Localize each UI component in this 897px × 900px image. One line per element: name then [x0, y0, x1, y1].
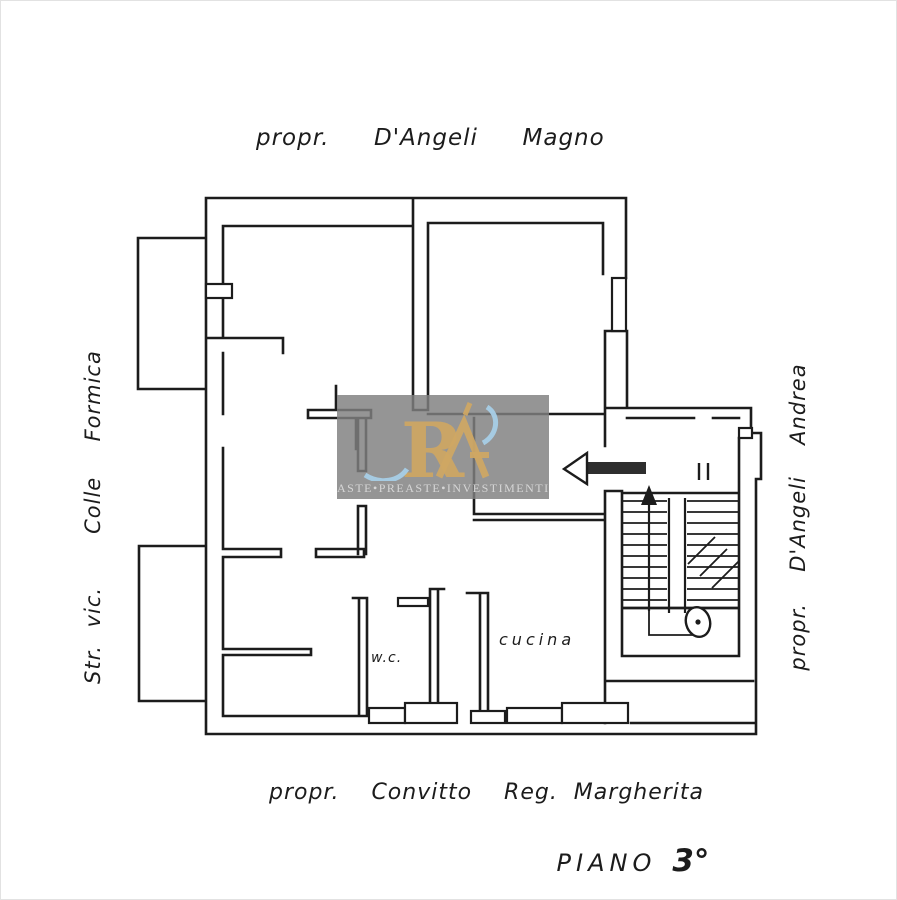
window-bottom-3 [507, 708, 562, 723]
staircase [622, 463, 739, 640]
window-bottom-1 [369, 708, 405, 723]
window-sill-2 [562, 703, 628, 723]
up-arrow-icon [641, 485, 657, 505]
door-tick-marks-icon [699, 463, 708, 480]
entry-arrow-icon [564, 453, 646, 484]
label-owner-top: propr. D'Angeli Magno [256, 125, 605, 151]
stair-column-dot [695, 619, 700, 624]
entry-door-jamb [739, 428, 752, 438]
floor-number: 3° [672, 843, 709, 879]
agency-logo-icon: R [337, 395, 549, 481]
label-room-wc: w.c. [371, 650, 402, 666]
window-bottom-2 [471, 711, 505, 723]
agency-caption: ASTE•PREASTE•INVESTIMENTI [337, 481, 549, 496]
logo-swoosh-top [483, 407, 496, 443]
wall-pilaster [206, 284, 232, 298]
label-owner-bottom: propr. Convitto Reg. Margherita [269, 780, 704, 805]
logo-apostrophe [465, 403, 470, 415]
floor-word: PIANO [557, 849, 657, 877]
label-owner-right: propr. D'Angeli Andrea [786, 357, 810, 677]
window-sill-1 [405, 703, 457, 723]
label-street-left: Str. vic. Colle Formica [81, 364, 105, 684]
agency-watermark: R ASTE•PREASTE•INVESTIMENTI [337, 395, 549, 499]
entry-arrow-shaft [587, 462, 646, 474]
entry-arrow-head [564, 453, 587, 484]
label-room-kitchen: cucina [499, 630, 575, 649]
floor-plan-page: propr. D'Angeli Magno Str. vic. Colle Fo… [0, 0, 897, 900]
window-right [612, 278, 626, 331]
wc-door-jamb [398, 598, 428, 606]
label-floor: PIANO3° [506, 815, 709, 900]
